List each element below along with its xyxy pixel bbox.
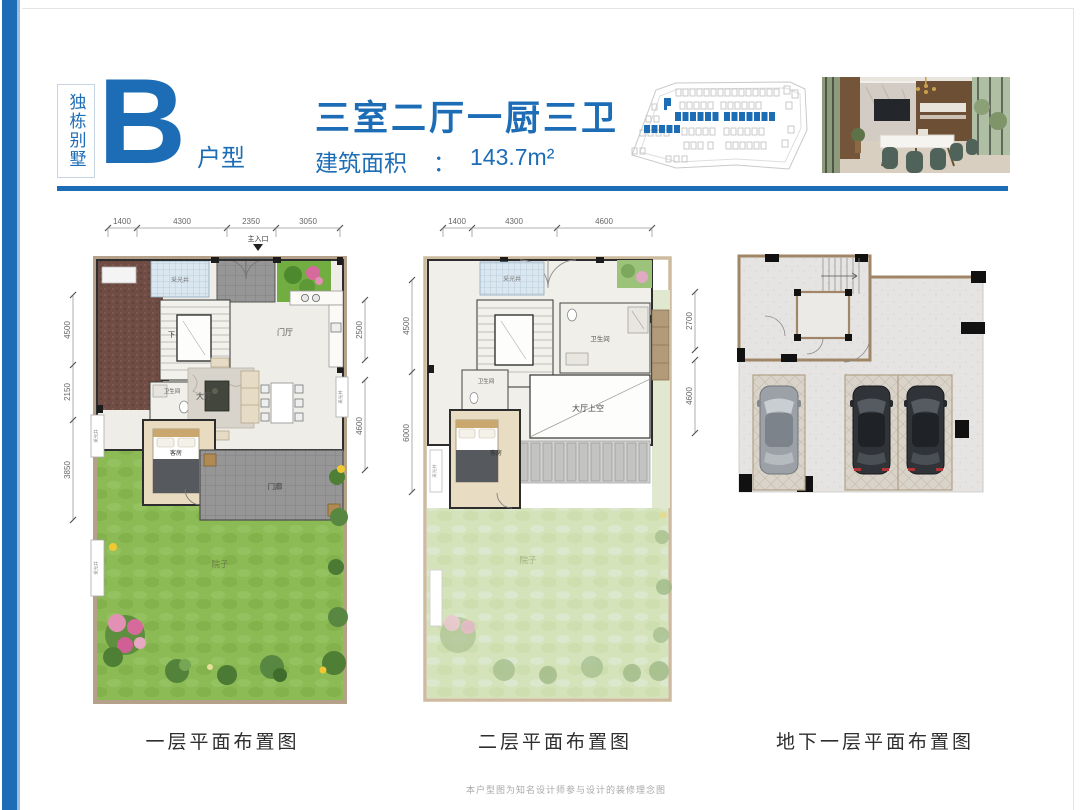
disclaimer-text: 本户型图为知名设计师参与设计的装修理念图 [26,783,1080,796]
unit-suffix-label: 户型 [197,138,245,173]
stairs-down-label: 下 [168,331,175,339]
floor2-dims-top [440,225,655,237]
basement-caption: 地下一层平面布置图 [735,727,1015,754]
dim-label: 4300 [173,217,191,226]
dim-label: 4500 [402,317,411,335]
car-icon [757,386,801,474]
entrance-arrow-icon [253,244,263,251]
lightwell-label: 采光井 [431,464,438,478]
page-frame-right [1073,8,1074,810]
left-accent-bar [2,0,17,810]
site-plan-thumbnail [618,76,818,178]
dim-label: 1400 [448,217,466,226]
lightwell-label: 采光井 [93,429,100,443]
dim-label: 2150 [63,383,72,401]
area-value: 143.7m² [470,144,554,178]
bath-label: 卫生间 [164,387,181,395]
foyer-label: 门厅 [277,327,293,337]
dim-label: 2700 [685,312,694,330]
page-title: 三室二厅一厨三卫 [315,90,619,141]
page-frame-top [22,8,1073,9]
dim-label: 4300 [505,217,523,226]
floor2-dims-left [409,277,415,495]
site-houses-gray [632,86,798,162]
left-accent-bar-edge [17,0,20,810]
bedroom-label: 客房 [490,449,502,457]
dim-label: 3850 [63,461,72,479]
yard-label: 院子 [519,555,537,565]
car-icon [904,386,947,474]
bath-label: 卫生间 [478,377,495,385]
hall-void: 大厅上空 [530,375,650,438]
floor1-dims-top [105,225,343,237]
porch: 门廊 [200,450,343,520]
lightwell-label: 采光井 [171,276,189,284]
area-colon: ： [433,144,456,178]
dim-label: 2350 [242,217,260,226]
ac-platform [102,267,136,283]
lightwell-right: 采光井 [336,377,348,417]
bedroom-label: 客房 [170,449,182,457]
header-divider [57,186,1008,191]
wardrobe [652,310,669,380]
dim-label: 4600 [355,417,364,435]
area-label: 建筑面积 [315,144,407,178]
lightwell-grid: 采光井 [480,262,544,295]
category-label: 独栋别墅 [57,84,95,178]
dim-label: 2500 [355,321,364,339]
entrance-label: 主入口 [248,234,269,243]
basement-plan [735,250,1015,495]
lightwell-grid: 采光井 [151,261,209,297]
yard-label: 院子 [211,559,229,569]
bathroom: 卫生间 [560,303,650,373]
hall-label: 大厅 [196,391,212,401]
lightwell-label: 采光井 [503,275,521,283]
lightwell-left-2: 采光井 [91,540,104,596]
roof-planter [617,260,652,288]
floor2-caption: 二层平面布置图 [400,727,710,754]
lightwell-left: 采光井 [430,450,442,492]
porch-label: 门廊 [268,481,283,491]
dim-label: 4600 [685,387,694,405]
unit-letter: B [98,60,186,182]
dim-label: 3050 [299,217,317,226]
bedroom: 客房 [450,410,520,508]
dim-label: 1400 [113,217,131,226]
lightwell-label: 采光井 [337,390,344,404]
floor2-plan: 1400 4300 4600 4500 6000 2700 4600 采光井 [400,215,710,720]
floor1-plan: 1400 4300 2350 3050 主入口 4500 2150 3850 2… [55,215,390,720]
roof-slats [515,441,650,483]
dim-label: 6000 [402,424,411,442]
void-label: 大厅上空 [572,403,604,413]
lightwell-label: 采光井 [93,561,100,575]
interior-photo [822,77,1010,173]
area-row: 建筑面积 ： 143.7m² [315,144,554,178]
dim-label: 4600 [595,217,613,226]
lightwell-left-1: 采光井 [91,415,104,457]
dim-label: 4500 [63,321,72,339]
bathroom-2: 卫生间 [462,370,508,410]
car-icon [850,386,893,474]
bath-label: 卫生间 [590,334,610,343]
floor2-dims-right [692,289,698,436]
floor1-caption: 一层平面布置图 [55,727,390,754]
lightwell-left-2 [430,570,442,626]
